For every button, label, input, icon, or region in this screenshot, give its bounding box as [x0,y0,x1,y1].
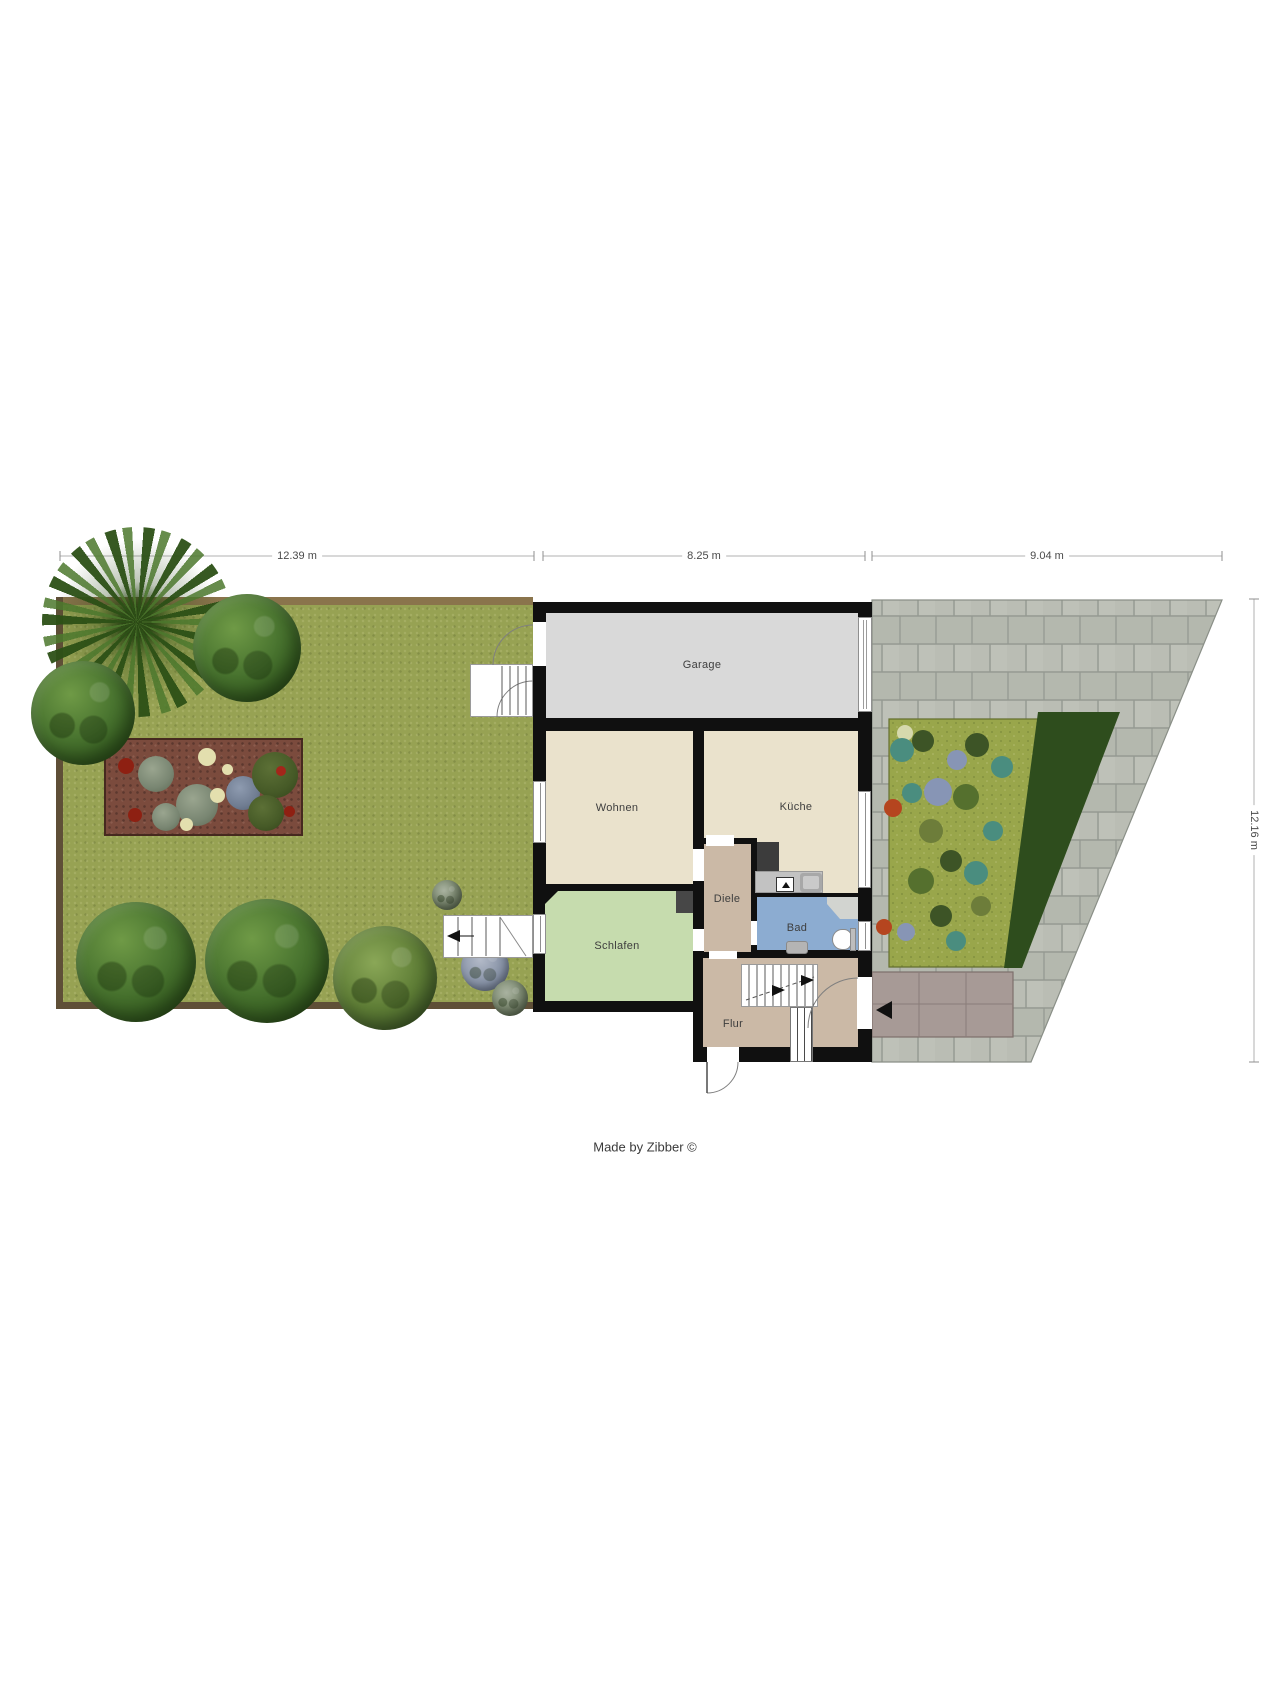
floor-plan-canvas: Garage Wohnen Küche Diele Bad Schlafen F… [0,0,1280,1706]
stair-treads-interior [746,965,814,1006]
dimension-right-vertical: 12.16 m [1248,805,1260,855]
bad-label: Bad [787,922,807,934]
stair-direction-arrow-icon [447,930,460,942]
flur-label: Flur [723,1018,743,1030]
plan-symbols-layer [0,0,1280,1706]
stair-direction-arrow-icon [801,975,814,986]
door-arcs [493,625,858,1093]
dimension-top-right: 9.04 m [1025,550,1069,562]
diele-label: Diele [714,893,741,905]
dimension-top-left: 12.39 m [272,550,322,562]
dimension-top-middle: 8.25 m [682,550,726,562]
stair-direction-arrow-icon [772,985,785,996]
stair-treads-lower [447,917,526,956]
schlafen-label: Schlafen [594,940,639,952]
kueche-label: Küche [780,801,813,813]
wohnen-label: Wohnen [596,802,639,814]
watermark-text: Made by Zibber © [593,1140,697,1155]
wall-bevel [545,891,558,904]
garage-label: Garage [683,659,722,671]
stair-treads-upper [502,666,526,715]
